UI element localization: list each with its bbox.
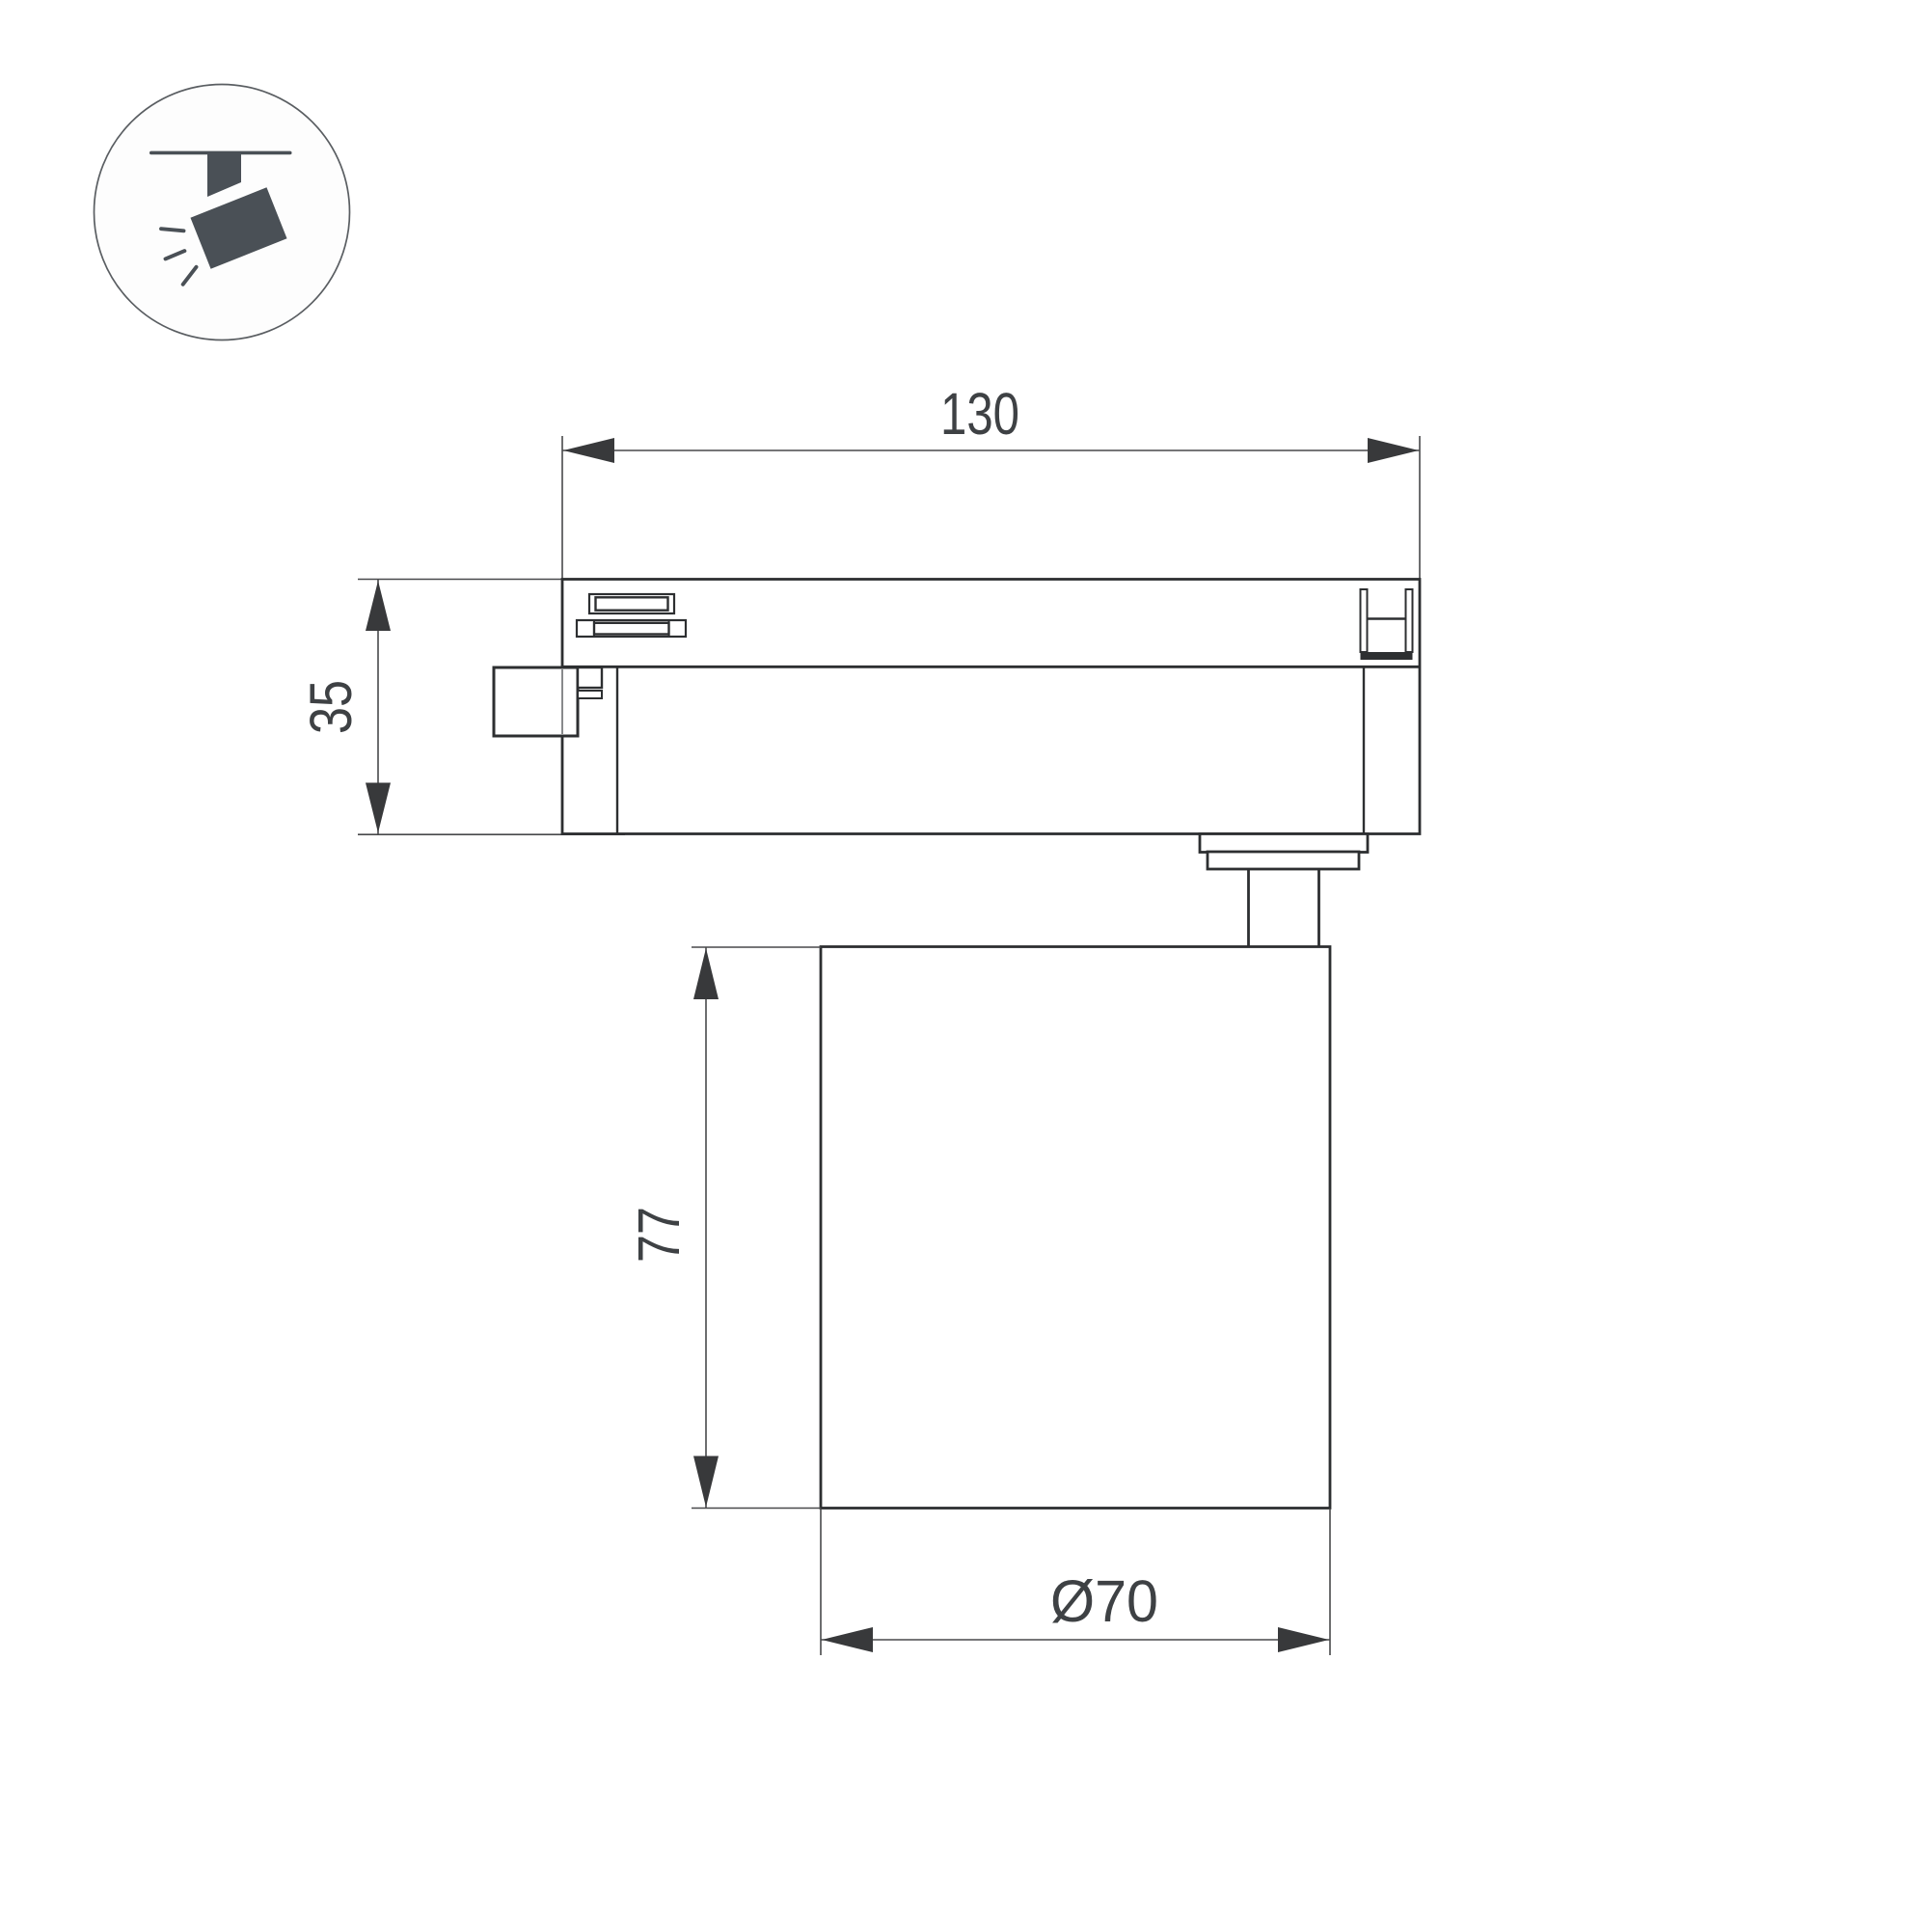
svg-text:Ø70: Ø70 xyxy=(1050,1568,1158,1634)
svg-text:77: 77 xyxy=(626,1207,692,1263)
svg-text:35: 35 xyxy=(298,680,364,734)
svg-text:130: 130 xyxy=(940,381,1019,447)
